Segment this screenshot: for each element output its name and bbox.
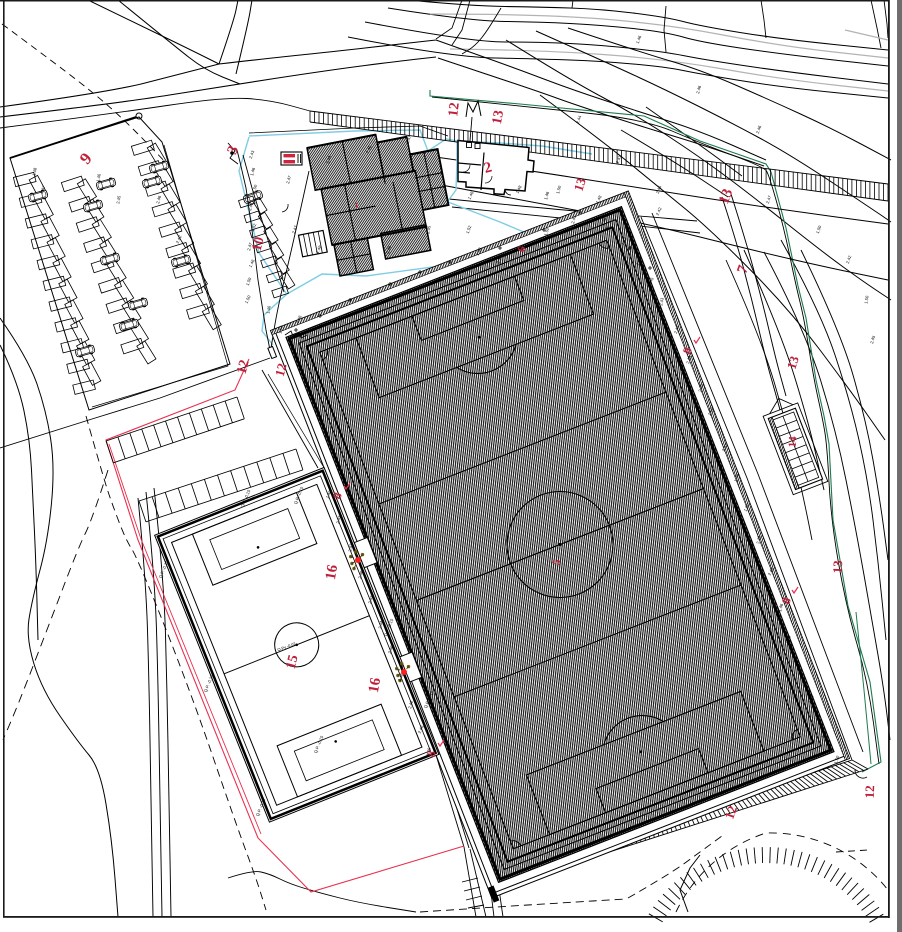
svg-text:13: 13 <box>490 109 507 125</box>
svg-text:14: 14 <box>787 436 799 448</box>
svg-text:13: 13 <box>830 560 845 574</box>
svg-text:12: 12 <box>446 102 463 118</box>
svg-text:12: 12 <box>862 785 877 799</box>
